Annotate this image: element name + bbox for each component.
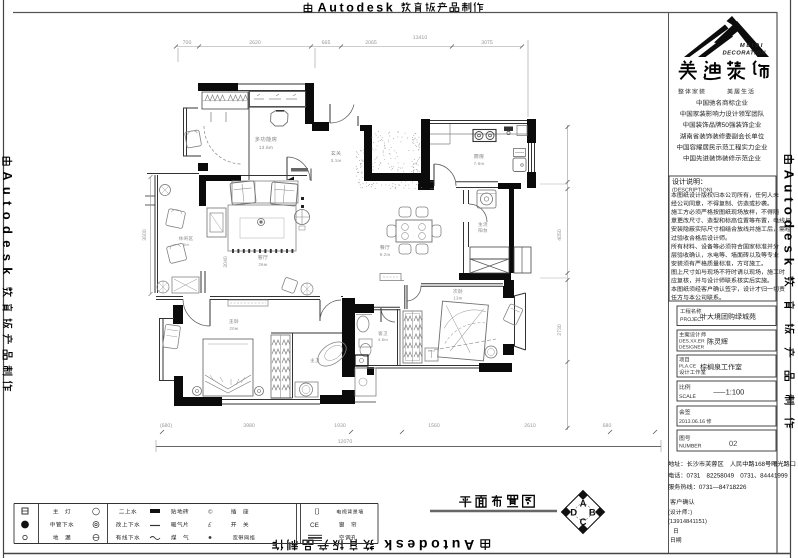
svg-text:CE: CE (310, 522, 319, 529)
svg-text:层验收确认，水电等、墙面砖以及等专业: 层验收确认，水电等、墙面砖以及等专业 (671, 251, 779, 259)
svg-text:⸺1:100: ⸺1:100 (713, 388, 744, 397)
svg-text:7.6m: 7.6m (474, 161, 485, 166)
svg-text:本图纸设计版权归本公司所有，任何人未: 本图纸设计版权归本公司所有，任何人未 (671, 191, 779, 199)
svg-text:项目: 项目 (679, 357, 690, 364)
svg-text:DES.XX.ER: DES.XX.ER (679, 339, 705, 345)
svg-text:日期: 日期 (670, 537, 682, 544)
svg-text:有线下水: 有线下水 (116, 535, 140, 542)
svg-text:厨房: 厨房 (474, 153, 485, 160)
svg-text:服务热线：0731—84718226: 服务热线：0731—84718226 (668, 483, 747, 491)
svg-text:£: £ (207, 522, 212, 529)
svg-text:主卫: 主卫 (310, 358, 320, 363)
svg-text:设计说明：: 设计说明： (672, 178, 707, 186)
svg-text:2610: 2610 (524, 423, 536, 429)
svg-text:客户确认: 客户确认 (670, 498, 695, 506)
svg-text:SCALE: SCALE (679, 394, 697, 400)
svg-text:美居生活: 美居生活 (727, 88, 755, 96)
svg-text:中管下水: 中管下水 (50, 522, 74, 529)
svg-text:宽带网络: 宽带网络 (233, 535, 256, 542)
svg-text:应复核，并与设计师联系核实后实施。: 应复核，并与设计师联系核实后实施。 (671, 277, 773, 285)
svg-text:A: A (580, 499, 587, 510)
svg-text:客卫: 客卫 (378, 331, 388, 336)
svg-text:700: 700 (183, 40, 192, 46)
svg-text:4.6m: 4.6m (378, 337, 388, 342)
svg-text:3600: 3600 (142, 229, 148, 241)
svg-text:3040: 3040 (223, 256, 229, 268)
svg-text:MEIDI: MEIDI (740, 43, 764, 49)
svg-text:整体家装: 整体家装 (678, 88, 706, 96)
svg-text:叶大境团购绿城苑: 叶大境团购绿城苑 (700, 313, 756, 321)
svg-text:二上水: 二上水 (119, 509, 137, 516)
svg-text:次卧: 次卧 (453, 288, 464, 295)
svg-text:地址：长沙市芙蓉区 人民中路168号曙光路口 2栋: 地址：长沙市芙蓉区 人民中路168号曙光路口 2栋 (668, 460, 798, 468)
svg-text:工程名称: 工程名称 (680, 308, 702, 315)
svg-text:中国驰名商标企业: 中国驰名商标企业 (696, 99, 749, 107)
svg-text:NUMBER: NUMBER (679, 444, 702, 450)
svg-text:开 关: 开 关 (231, 522, 249, 529)
svg-text:过验收合格后设计师。: 过验收合格后设计师。 (671, 234, 731, 242)
svg-text:陈灵辉: 陈灵辉 (707, 338, 728, 346)
svg-text:DECORATION: DECORATION (722, 50, 766, 57)
svg-text:665: 665 (322, 40, 331, 46)
svg-text:6m: 6m (183, 242, 190, 247)
svg-text:B: B (589, 507, 596, 518)
svg-text:13.6m: 13.6m (259, 145, 273, 150)
svg-text:会签: 会签 (679, 409, 691, 416)
svg-text:图上尺寸如与现场不符时请以现场，施工时: 图上尺寸如与现场不符时请以现场，施工时 (671, 268, 785, 276)
svg-text:煤 气: 煤 气 (171, 535, 189, 542)
svg-text:©: © (208, 509, 213, 516)
svg-text:中国装饰品牌50强装饰企业: 中国装饰品牌50强装饰企业 (683, 121, 762, 129)
svg-text:主 灯: 主 灯 (53, 509, 71, 516)
svg-text:12070: 12070 (338, 439, 353, 445)
svg-text:施工方必须严格按图纸现场放样，不得随: 施工方必须严格按图纸现场放样，不得随 (671, 208, 779, 216)
svg-text:客厅: 客厅 (258, 254, 269, 261)
svg-text:D: D (570, 507, 577, 518)
svg-text:主卧: 主卧 (229, 318, 240, 325)
svg-text:2065: 2065 (365, 40, 377, 46)
svg-text:02: 02 (729, 439, 737, 448)
svg-text:26m: 26m (258, 262, 267, 267)
svg-text:DESIGNER: DESIGNER (679, 345, 705, 351)
svg-text:2013.06.16 修: 2013.06.16 修 (679, 418, 712, 425)
svg-text:暖气片: 暖气片 (171, 522, 189, 529)
svg-text:安装隐蔽实际尺寸相结合放线并施工后，需经: 安装隐蔽实际尺寸相结合放线并施工后，需经 (671, 225, 791, 233)
svg-text:图号: 图号 (679, 435, 691, 442)
svg-text:1560: 1560 (428, 423, 440, 429)
svg-text:9.2m: 9.2m (380, 252, 391, 257)
svg-text:20m: 20m (229, 326, 238, 331)
svg-text:比例: 比例 (679, 384, 691, 391)
svg-text:2620: 2620 (249, 40, 261, 46)
svg-text:13410: 13410 (413, 35, 428, 41)
svg-text:中国容耀居民示范工程实力企业: 中国容耀居民示范工程实力企业 (677, 143, 769, 151)
svg-text:玄关: 玄关 (331, 150, 342, 157)
svg-text:13m: 13m (453, 296, 462, 301)
svg-text:电视背景墙: 电视背景墙 (336, 509, 364, 516)
svg-text:680: 680 (603, 423, 612, 429)
svg-text:3.1m: 3.1m (331, 158, 342, 163)
svg-text:电话：0731 82258049 0731、84441999: 电话：0731 82258049 0731、84441999 (668, 472, 788, 480)
svg-text:3980: 3980 (243, 423, 255, 429)
svg-text:日: 日 (673, 528, 679, 535)
svg-text:安装须有严格质量标准，方可施工。: 安装须有严格质量标准，方可施工。 (671, 259, 767, 267)
svg-text:2730: 2730 (557, 324, 563, 336)
svg-text:意更改尺寸、造型和标高位置等布置，电线与: 意更改尺寸、造型和标高位置等布置，电线与 (671, 217, 791, 225)
svg-text:窗 帘: 窗 帘 (339, 522, 357, 529)
svg-text:(13914841151): (13914841151) (668, 518, 707, 525)
svg-text:中国先进装饰装修示范企业: 中国先进装饰装修示范企业 (683, 155, 762, 163)
svg-text:餐厅: 餐厅 (380, 244, 391, 251)
svg-text:4050: 4050 (557, 229, 563, 241)
svg-text:棕榈泉工作室: 棕榈泉工作室 (700, 364, 742, 372)
svg-text:休闲区: 休闲区 (179, 236, 194, 241)
svg-text:主案设计师: 主案设计师 (679, 332, 707, 339)
svg-text:生活: 生活 (478, 222, 488, 227)
svg-text:贴地砖: 贴地砖 (171, 509, 189, 516)
svg-text:所有材料、设备等必须符合国家标准并分: 所有材料、设备等必须符合国家标准并分 (671, 242, 779, 250)
svg-text:多功能房: 多功能房 (255, 136, 278, 143)
svg-text:PLA.CE: PLA.CE (679, 364, 696, 370)
svg-text:1930: 1930 (334, 423, 346, 429)
svg-text:空调孔: 空调孔 (339, 535, 357, 542)
svg-text:插 座: 插 座 (231, 509, 249, 516)
svg-text:3075: 3075 (481, 40, 493, 46)
svg-text:(设计师：): (设计师：) (668, 509, 692, 516)
svg-text:经公司同意，不得复制、仿造或抄袭。: 经公司同意，不得复制、仿造或抄袭。 (671, 200, 773, 208)
svg-text:地 漏: 地 漏 (53, 535, 71, 542)
svg-text:湖南省装饰装修委副会长单位: 湖南省装饰装修委副会长单位 (680, 132, 765, 140)
svg-text:改上下水: 改上下水 (116, 522, 140, 529)
svg-text:C: C (580, 517, 587, 528)
svg-text:阳台: 阳台 (478, 228, 488, 233)
svg-text:中国家装影响力设计领军团队: 中国家装影响力设计领军团队 (680, 110, 765, 118)
svg-text:(680): (680) (160, 423, 172, 429)
svg-text:任方与本公司联系。: 任方与本公司联系。 (671, 294, 725, 302)
svg-text:本图纸须经客户确认签字，设计才归一切责: 本图纸须经客户确认签字，设计才归一切责 (671, 285, 785, 293)
svg-text:〔〕: 〔〕 (310, 508, 324, 516)
